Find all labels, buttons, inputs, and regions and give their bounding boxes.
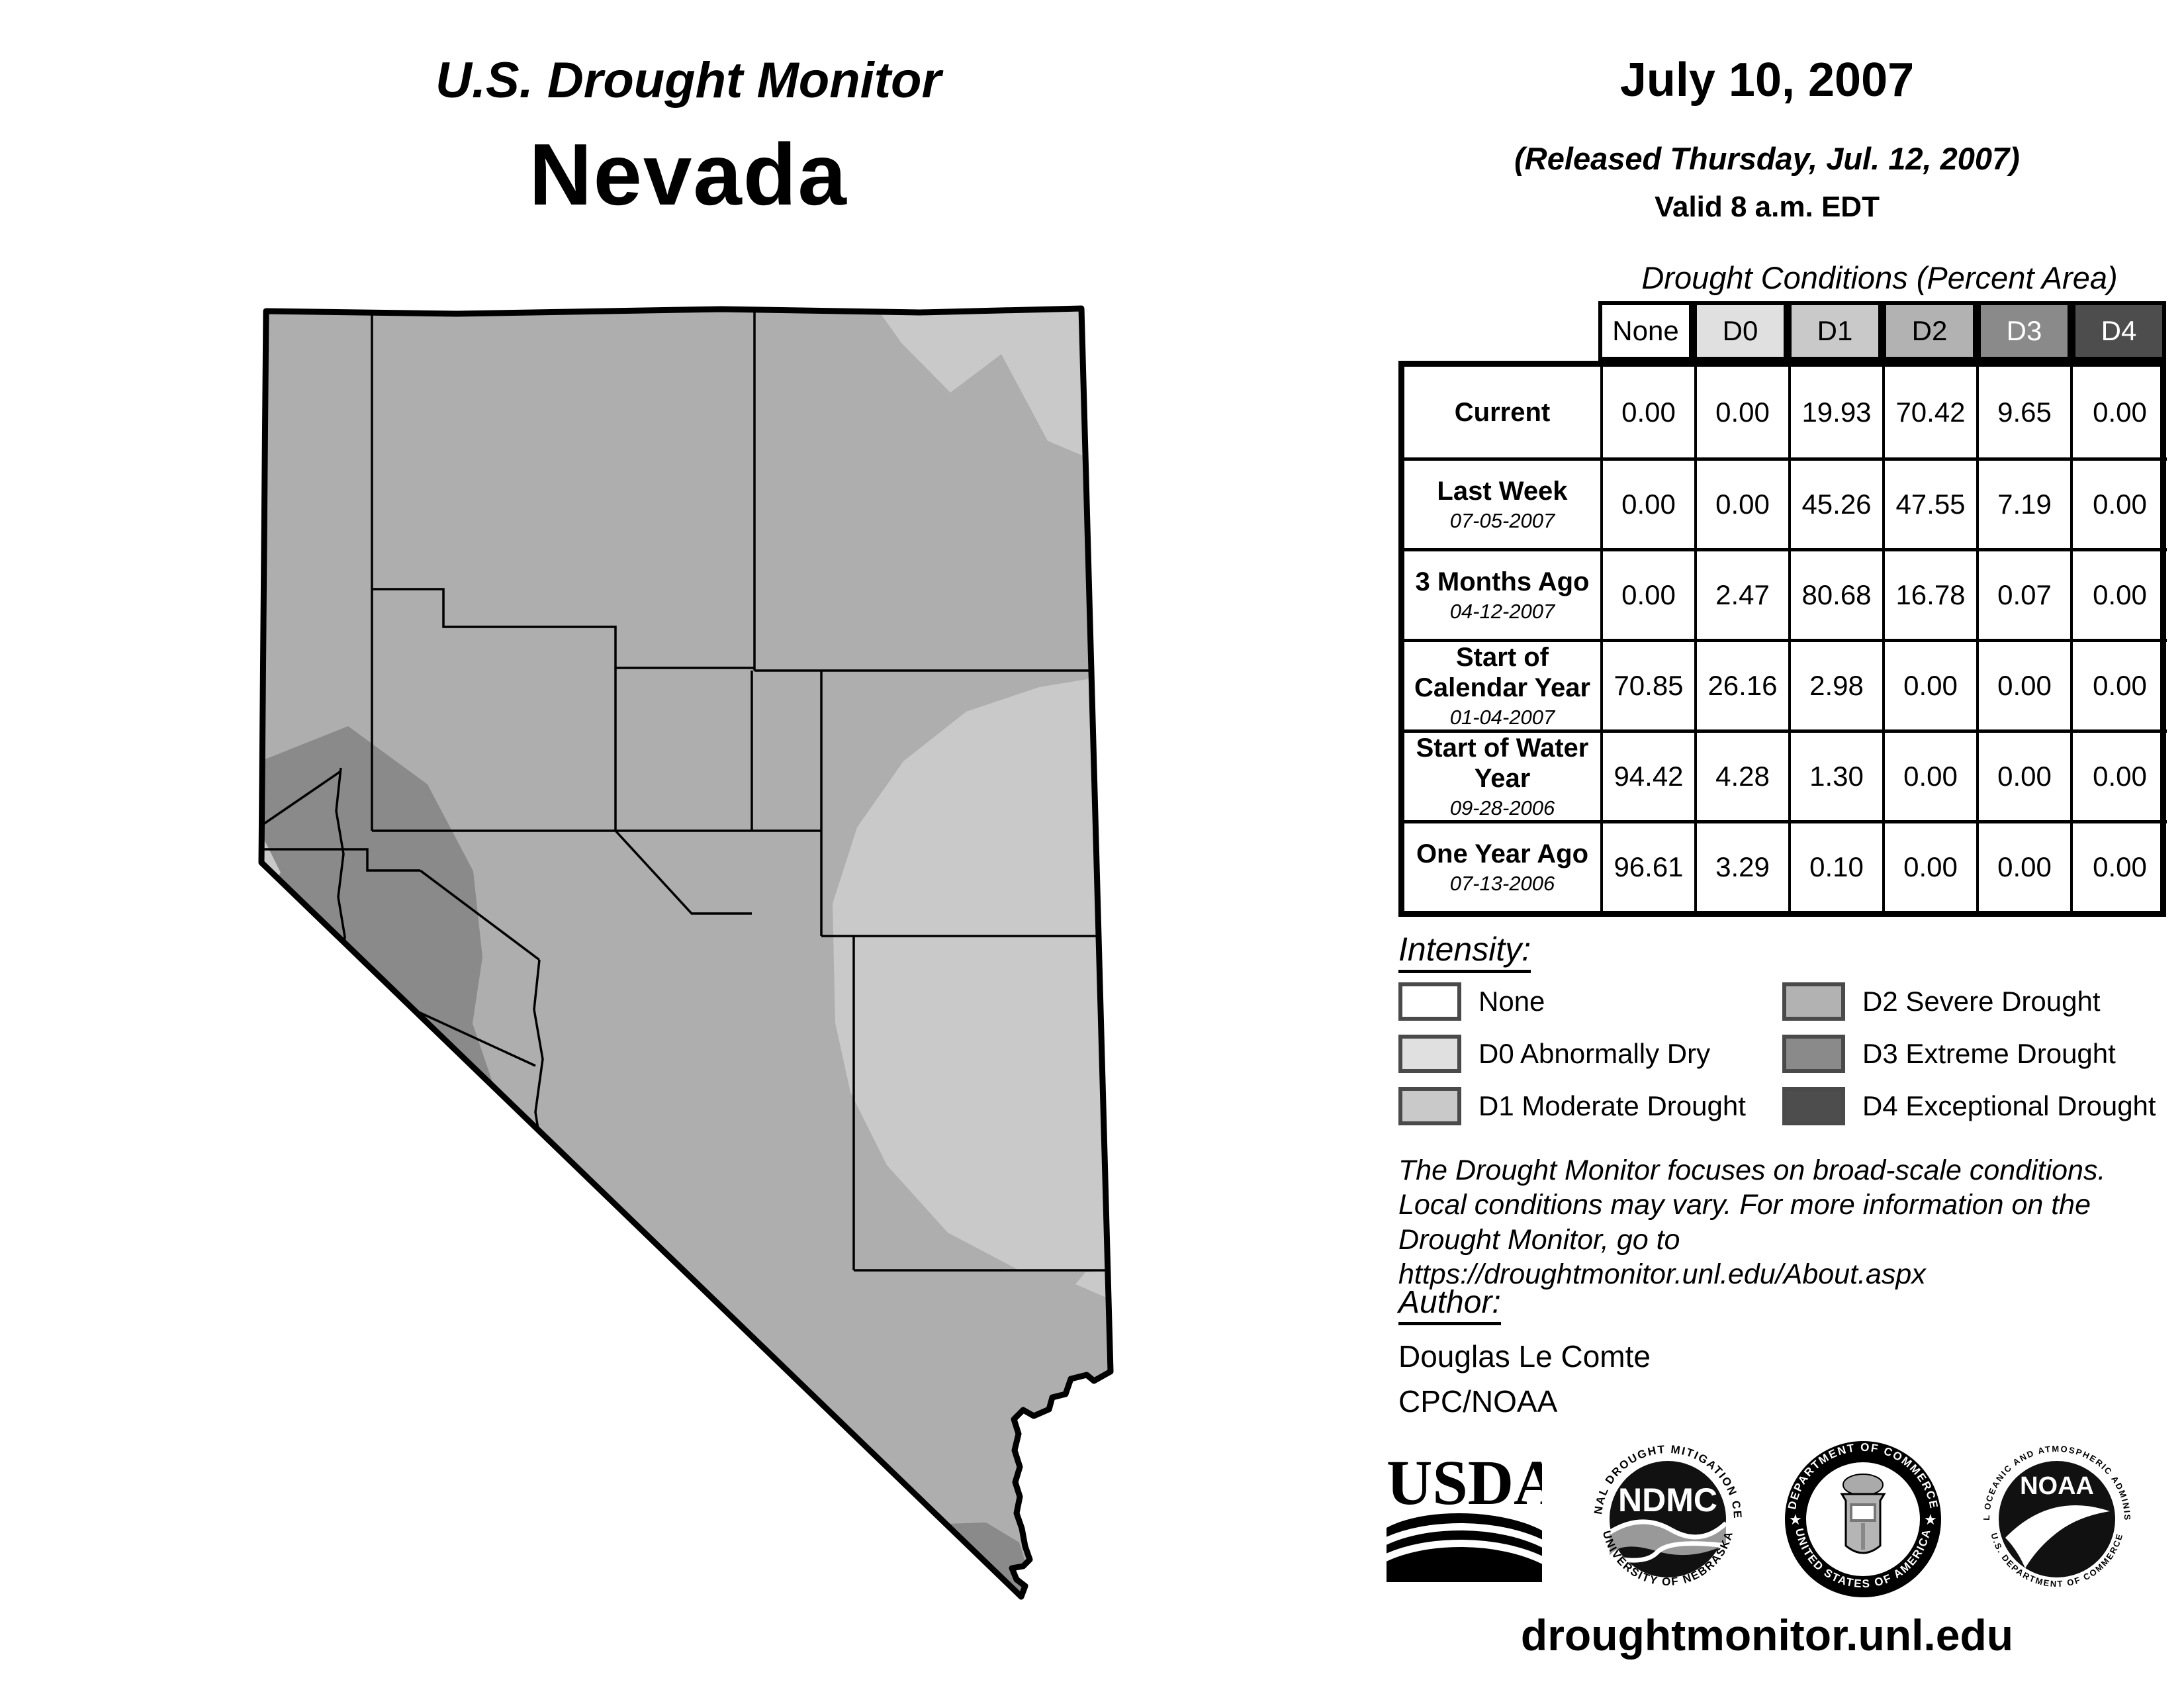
nevada-drought-map [258, 305, 1132, 1615]
table-value: 26.16 [1697, 639, 1791, 729]
table-value: 16.78 [1885, 548, 1979, 639]
report-title: U.S. Drought Monitor [258, 52, 1118, 109]
author-name: Douglas Le Comte [1398, 1338, 1651, 1374]
table-value: 4.28 [1697, 729, 1791, 820]
legend-swatch [1398, 1087, 1461, 1125]
table-value: 0.10 [1791, 820, 1885, 911]
table-value: 0.00 [1979, 729, 2073, 820]
drought-table-header: NoneD0D1D2D3D4 [1598, 301, 2166, 361]
row-label-text: Last Week [1428, 476, 1576, 506]
legend-swatch [1782, 982, 1845, 1021]
table-value: 80.68 [1791, 548, 1885, 639]
disclaimer-text: The Drought Monitor focuses on broad-sca… [1398, 1153, 2179, 1292]
table-value: 0.07 [1979, 548, 2073, 639]
legend-swatch [1398, 1035, 1461, 1073]
noaa-logo: NOAA NATIONAL OCEANIC AND ATMOSPHERIC AD… [1976, 1438, 2138, 1600]
legend-label: D4 Exceptional Drought [1862, 1090, 2156, 1122]
row-label: Start of Calendar Year01-04-2007 [1404, 639, 1603, 729]
author-organization: CPC/NOAA [1398, 1383, 1557, 1419]
row-label-date: 04-12-2007 [1450, 600, 1555, 624]
table-value: 0.00 [2073, 457, 2167, 548]
row-label: 3 Months Ago04-12-2007 [1404, 548, 1603, 639]
table-value: 0.00 [1697, 367, 1791, 457]
row-label-text: Start of Water Year [1404, 733, 1600, 794]
table-value: 0.00 [2073, 548, 2167, 639]
table-value: 0.00 [1697, 457, 1791, 548]
legend-label: D2 Severe Drought [1862, 986, 2101, 1017]
table-value: 0.00 [1885, 639, 1979, 729]
disclaimer-line: Local conditions may vary. For more info… [1398, 1188, 2179, 1222]
table-value: 47.55 [1885, 457, 1979, 548]
commerce-eagle-shield [1842, 1474, 1884, 1553]
column-header-none: None [1598, 301, 1693, 361]
svg-text:★: ★ [1924, 1511, 1937, 1528]
table-value: 9.65 [1979, 367, 2073, 457]
table-value: 45.26 [1791, 457, 1885, 548]
column-header-d2: D2 [1882, 301, 1977, 361]
disclaimer-line: The Drought Monitor focuses on broad-sca… [1398, 1153, 2179, 1188]
table-value: 94.42 [1603, 729, 1697, 820]
row-label: Start of Water Year09-28-2006 [1404, 729, 1603, 820]
row-label-text: One Year Ago [1407, 839, 1598, 869]
table-value: 0.00 [1603, 548, 1697, 639]
legend-swatch [1782, 1035, 1845, 1073]
column-header-d1: D1 [1788, 301, 1882, 361]
footer-url: droughtmonitor.unl.edu [1403, 1610, 2131, 1660]
legend-item: D4 Exceptional Drought [1782, 1086, 2156, 1127]
table-value: 0.00 [2073, 820, 2167, 911]
table-value: 19.93 [1791, 367, 1885, 457]
noaa-logo-text: NOAA [2020, 1472, 2094, 1500]
legend-item: D0 Abnormally Dry [1398, 1033, 1746, 1074]
author-label: Author: [1398, 1284, 1501, 1325]
row-label: Current [1404, 367, 1603, 457]
ndmc-logo: NDMC NATIONAL DROUGHT MITIGATION CENTER … [1587, 1438, 1749, 1600]
legend-column-right: D2 Severe DroughtD3 Extreme DroughtD4 Ex… [1782, 981, 2156, 1127]
table-value: 7.19 [1979, 457, 2073, 548]
table-value: 0.00 [1603, 367, 1697, 457]
legend-label: None [1479, 986, 1545, 1017]
column-header-d4: D4 [2071, 301, 2166, 361]
column-header-d0: D0 [1693, 301, 1788, 361]
row-label-text: 3 Months Ago [1406, 567, 1599, 597]
row-label: One Year Ago07-13-2006 [1404, 820, 1603, 911]
row-label-date: 09-28-2006 [1450, 796, 1555, 820]
usda-logo-text: USDA [1387, 1450, 1542, 1518]
table-value: 0.00 [1979, 820, 2073, 911]
table-value: 1.30 [1791, 729, 1885, 820]
table-value: 0.00 [2073, 367, 2167, 457]
table-value: 3.29 [1697, 820, 1791, 911]
report-date: July 10, 2007 [1403, 53, 2131, 107]
table-value: 96.61 [1603, 820, 1697, 911]
row-label-date: 07-05-2007 [1450, 509, 1555, 533]
ndmc-logo-text: NDMC [1618, 1481, 1717, 1519]
usda-logo: USDA [1387, 1450, 1542, 1592]
commerce-seal: ★ ★ DEPARTMENT OF COMMERCE UNITED STATES… [1782, 1438, 1944, 1600]
column-header-d3: D3 [1977, 301, 2071, 361]
table-value: 0.00 [1885, 820, 1979, 911]
row-label-date: 01-04-2007 [1450, 706, 1555, 729]
legend-label: D3 Extreme Drought [1862, 1038, 2116, 1070]
state-name-title: Nevada [258, 124, 1118, 224]
row-label: Last Week07-05-2007 [1404, 457, 1603, 548]
legend-label: D1 Moderate Drought [1479, 1090, 1746, 1122]
legend-item: D3 Extreme Drought [1782, 1033, 2156, 1074]
table-title: Drought Conditions (Percent Area) [1588, 259, 2171, 296]
table-value: 0.00 [1603, 457, 1697, 548]
legend-column-left: NoneD0 Abnormally DryD1 Moderate Drought [1398, 981, 1746, 1127]
released-date: (Released Thursday, Jul. 12, 2007) [1403, 140, 2131, 177]
legend-item: None [1398, 981, 1746, 1022]
valid-time: Valid 8 a.m. EDT [1403, 191, 2131, 224]
legend-swatch [1398, 982, 1461, 1021]
disclaimer-line: Drought Monitor, go to https://droughtmo… [1398, 1223, 2179, 1292]
table-value: 0.00 [1885, 729, 1979, 820]
legend-item: D1 Moderate Drought [1398, 1086, 1746, 1127]
table-value: 0.00 [2073, 639, 2167, 729]
table-value: 70.42 [1885, 367, 1979, 457]
svg-text:★: ★ [1789, 1511, 1802, 1528]
table-value: 0.00 [2073, 729, 2167, 820]
table-value: 70.85 [1603, 639, 1697, 729]
legend-title: Intensity: [1398, 930, 1531, 973]
legend-label: D0 Abnormally Dry [1479, 1038, 1710, 1070]
table-value: 2.98 [1791, 639, 1885, 729]
table-value: 2.47 [1697, 548, 1791, 639]
drought-table: Current0.000.0019.9370.429.650.00Last We… [1398, 361, 2166, 917]
row-label-date: 07-13-2006 [1450, 872, 1555, 896]
row-label-text: Current [1445, 397, 1559, 428]
table-value: 0.00 [1979, 639, 2073, 729]
legend-item: D2 Severe Drought [1782, 981, 2156, 1022]
row-label-text: Start of Calendar Year [1404, 642, 1600, 703]
legend-swatch [1782, 1087, 1845, 1125]
